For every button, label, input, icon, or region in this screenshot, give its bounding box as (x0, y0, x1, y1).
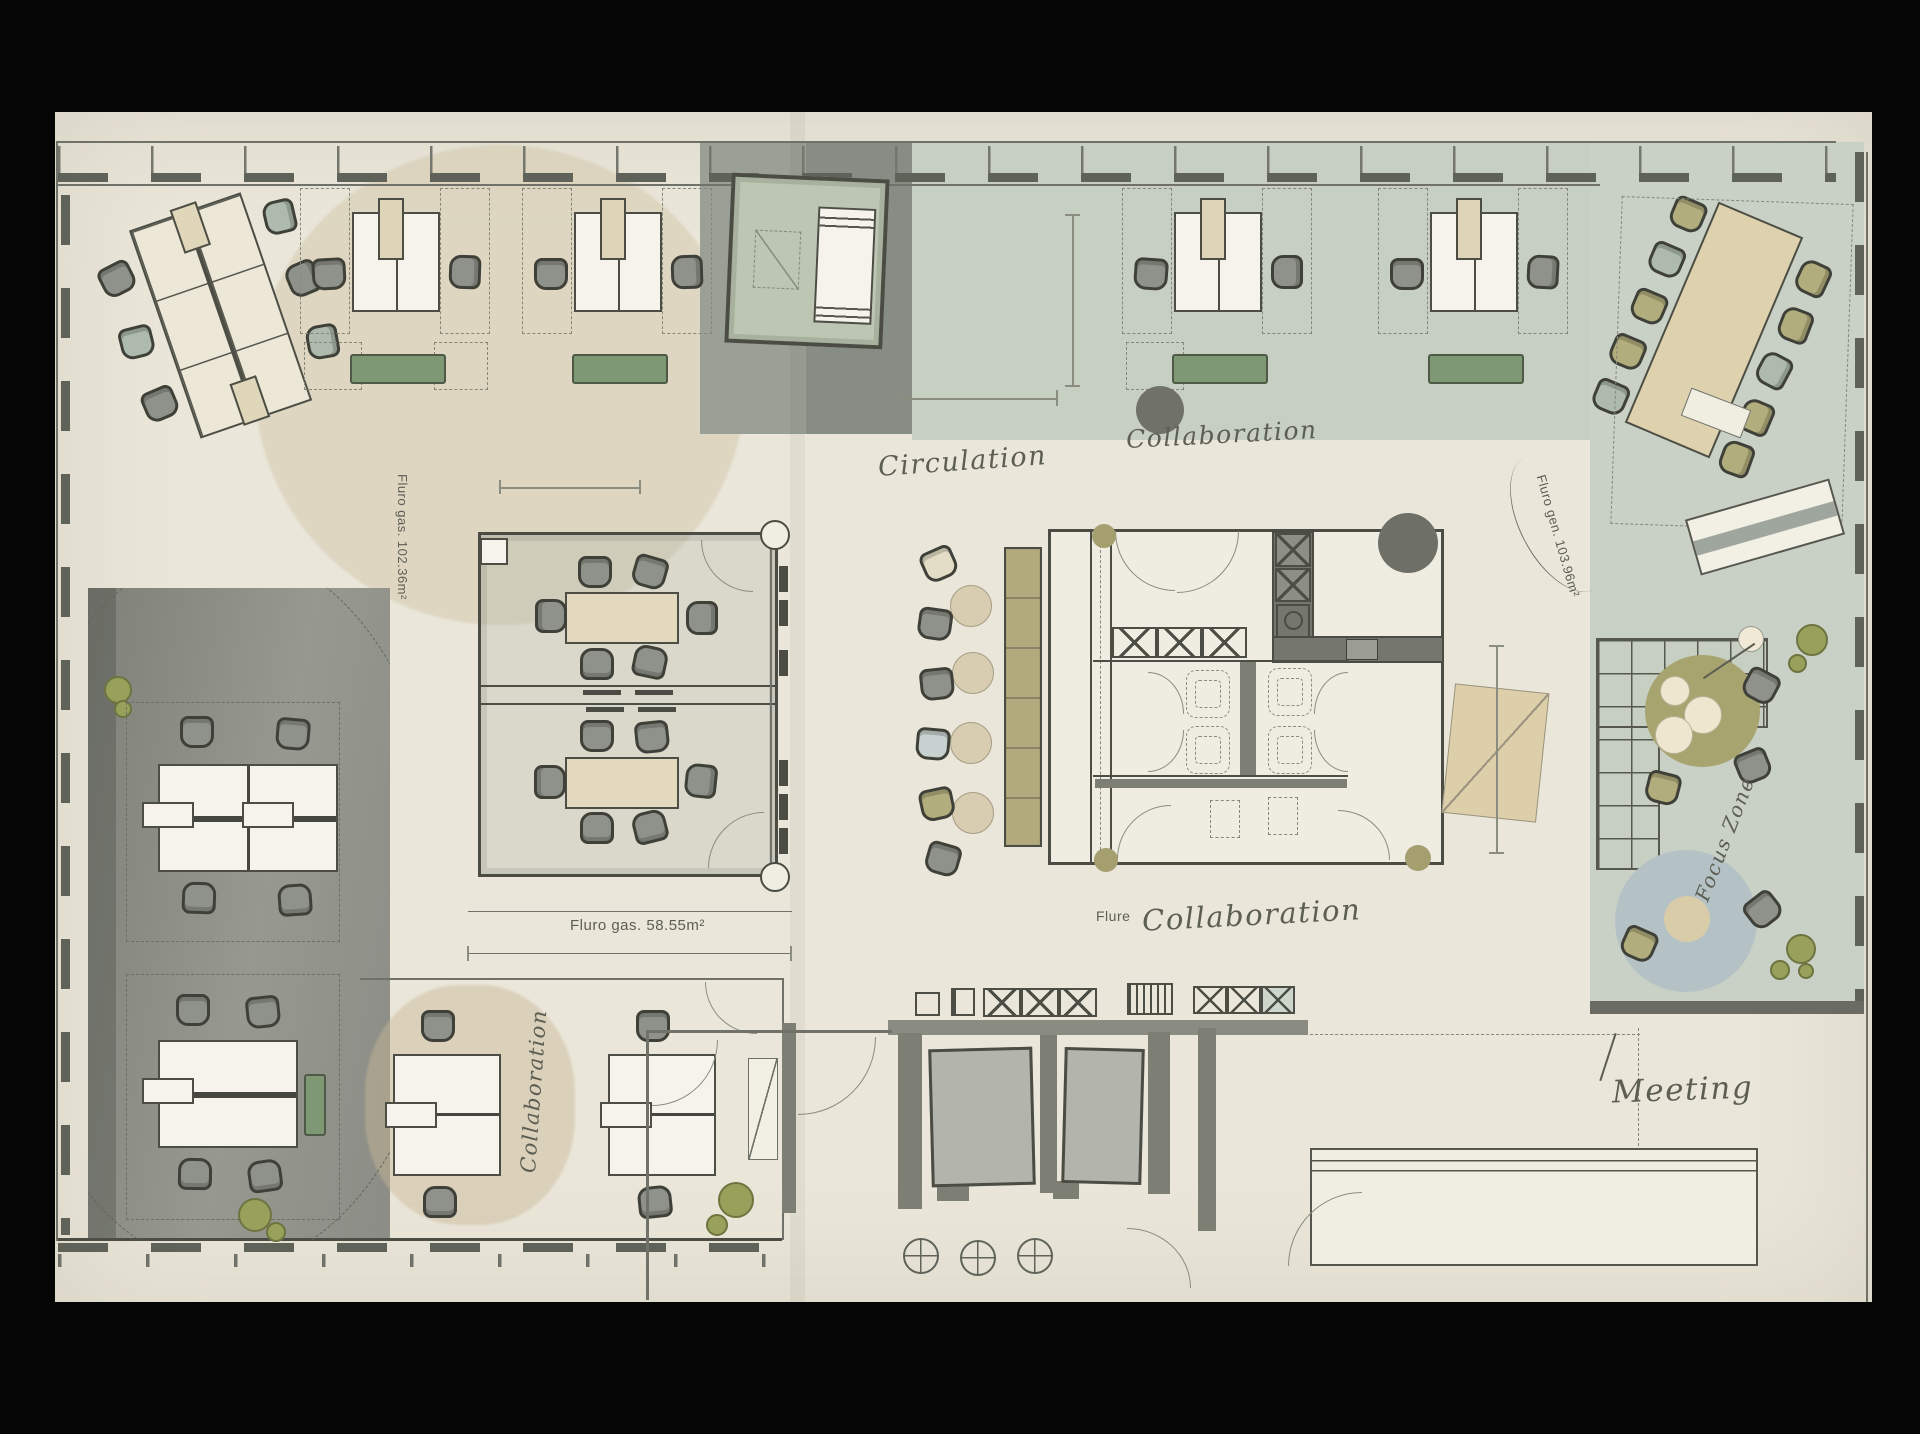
shaft-box (951, 988, 975, 1016)
plant (1786, 934, 1816, 964)
chair (423, 1186, 457, 1218)
bench-green (1172, 354, 1268, 384)
core-wall (1110, 532, 1112, 862)
chair (178, 1158, 213, 1191)
annotation-dot (1738, 626, 1764, 652)
chair (578, 556, 612, 588)
desk-divider (1200, 198, 1226, 260)
label-flure: Flure (1096, 908, 1130, 924)
core-top-band (888, 1020, 1308, 1035)
dimension-tick (1489, 645, 1504, 647)
dimension-tick (1065, 385, 1080, 387)
chair (918, 666, 955, 701)
wc-wall (1093, 660, 1348, 662)
locker-x (1157, 627, 1202, 658)
locker-x (1202, 627, 1247, 658)
bench-green (1428, 354, 1524, 384)
desk-cluster (1122, 182, 1312, 398)
glass-mullion (779, 566, 788, 592)
meeting-table (565, 757, 679, 809)
dimension-tick (467, 946, 469, 961)
desk-return (600, 1102, 652, 1128)
toilet (1268, 726, 1312, 774)
wc-wall (1093, 775, 1348, 777)
plant (718, 1182, 754, 1218)
survey-marker (1017, 1238, 1053, 1274)
core-wall (1090, 532, 1092, 862)
dimension-tick (639, 480, 641, 494)
glass-mullion (779, 760, 788, 786)
chair (180, 716, 214, 748)
core-wall (782, 1023, 796, 1213)
sink-bowl (1284, 611, 1303, 630)
chair (534, 765, 566, 799)
chair (636, 1010, 670, 1042)
shaft-x (1227, 986, 1261, 1014)
desk-return (242, 802, 294, 828)
chair (181, 881, 216, 914)
banquette-bench (1004, 547, 1042, 847)
desk-cluster-quad (118, 702, 348, 962)
kitchen-x (1275, 533, 1311, 567)
room-wall-line (646, 1030, 892, 1033)
chair (1526, 254, 1560, 290)
shaft-wall (898, 1033, 922, 1209)
chair (448, 254, 481, 289)
leaning-board (748, 1058, 778, 1160)
desk-cluster-vertical (385, 1008, 525, 1243)
chair (670, 254, 703, 289)
plant (266, 1222, 286, 1242)
label-meeting: Meeting (1611, 1070, 1753, 1111)
column-round (760, 520, 790, 550)
column-round (760, 862, 790, 892)
shaft-box (915, 992, 940, 1016)
chair (275, 717, 312, 752)
chair (535, 599, 567, 633)
toilet-tank (1277, 678, 1303, 706)
chair (421, 1010, 455, 1042)
plant (1798, 963, 1814, 979)
room-wall-line (646, 1030, 649, 1300)
plant (706, 1214, 728, 1236)
chair (311, 257, 347, 291)
chair (686, 601, 718, 635)
chair (246, 1158, 284, 1194)
pouf (952, 652, 994, 694)
column-box (480, 538, 508, 565)
chair (534, 258, 568, 290)
core-wall (1095, 779, 1347, 788)
dimension-tick (790, 946, 792, 961)
top-wall-windows (58, 173, 1836, 182)
divider-mark (586, 707, 679, 712)
desk-return (142, 1078, 194, 1104)
shaft-x (983, 988, 1021, 1017)
dimension-tick (1489, 852, 1504, 854)
right-wall-outer-line (1866, 152, 1868, 1302)
desk-cluster (522, 182, 712, 398)
survey-marker (903, 1238, 939, 1274)
annotation-line (468, 953, 792, 954)
chair (1390, 258, 1424, 290)
shaft-x (1261, 986, 1295, 1014)
desk-return (385, 1102, 437, 1128)
chair (1271, 255, 1303, 289)
chair (915, 727, 952, 762)
dimension-line (1496, 646, 1498, 854)
left-wall-outer-line (56, 141, 58, 1241)
green-room (724, 173, 889, 350)
chair (138, 383, 182, 426)
right-wall-windows (1855, 152, 1864, 1012)
locker-x (1112, 627, 1157, 658)
column-dark (1378, 513, 1438, 573)
desk-divider (600, 198, 626, 260)
shaft-wall (1198, 1028, 1216, 1231)
chair (1133, 257, 1169, 291)
glass-mullion (779, 650, 788, 676)
fixture-dashed (1210, 800, 1240, 838)
shaft-x (1193, 986, 1227, 1014)
elevator-cab (928, 1047, 1036, 1188)
toilet (1186, 726, 1230, 774)
glass-mullion (779, 794, 788, 820)
top-wall-mullions (58, 146, 1836, 176)
left-wall-windows (61, 195, 70, 1235)
chair (580, 720, 614, 752)
toilet (1268, 668, 1312, 716)
room-divider-line (481, 703, 775, 705)
corner-post (1405, 845, 1431, 871)
desk-divider (1456, 198, 1482, 260)
toilet (1186, 670, 1230, 718)
dimension-tick (1056, 390, 1058, 406)
chair (244, 994, 281, 1029)
label-area-left: Fluro gas. 102.36m² (395, 474, 410, 600)
glass-wall-line (770, 534, 772, 876)
right-zone-bottom-wall (1590, 1001, 1864, 1014)
glass-mullion (779, 600, 788, 626)
bench-green (304, 1074, 326, 1136)
pouf (952, 792, 994, 834)
bottom-wall-windows (58, 1243, 782, 1252)
chair (580, 648, 614, 680)
chair (580, 812, 614, 844)
layout-dashed-line (1310, 1034, 1640, 1035)
toilet-tank (1195, 680, 1221, 708)
chair (260, 197, 299, 237)
plant (1796, 624, 1828, 656)
fixture-dashed (1268, 797, 1298, 835)
toilet-tank (1277, 736, 1303, 764)
toilet-tank (1195, 736, 1221, 764)
chair (176, 994, 210, 1026)
corner-post (1094, 848, 1118, 872)
wc-wall (1240, 662, 1256, 775)
table-plate (1660, 676, 1690, 706)
shaft-wall (1148, 1032, 1170, 1194)
label-area-center: Fluro gas. 58.55m² (570, 917, 705, 934)
floor-plan-canvas: Circulation Collaboration Collaboration … (0, 0, 1920, 1434)
desk-cluster (1378, 182, 1568, 398)
shaft-stub (937, 1186, 969, 1201)
plant (1788, 654, 1807, 673)
plant (1770, 960, 1790, 980)
survey-marker (960, 1240, 996, 1276)
bench-green (572, 354, 668, 384)
meeting-table (565, 592, 679, 644)
desk-return (142, 802, 194, 828)
shaft-wall (1040, 1035, 1057, 1193)
corner-post (1092, 524, 1116, 548)
dimension-tick (897, 390, 899, 406)
dimension-line (1072, 215, 1074, 385)
room-wall-line (360, 978, 784, 980)
top-wall-outer-line (58, 141, 1836, 143)
chair (916, 606, 954, 642)
chair (636, 1184, 673, 1219)
divider-mark (583, 690, 676, 695)
annotation-line (468, 911, 792, 912)
dimension-tick (1065, 214, 1080, 216)
chair (95, 257, 140, 301)
room-divider-line (481, 685, 775, 687)
pouf (950, 585, 992, 627)
elevator-cab (1061, 1047, 1145, 1185)
bench-green (350, 354, 446, 384)
dimension-line (500, 487, 640, 489)
chair (116, 323, 157, 362)
stair-hatch (1127, 983, 1173, 1015)
chair (633, 719, 670, 754)
glass-mullion (779, 828, 788, 854)
desk-cluster (300, 182, 490, 398)
kitchen-oven (1346, 639, 1378, 660)
meeting-zone-table (1310, 1148, 1758, 1266)
shaft-x (1059, 988, 1097, 1017)
room-table (813, 206, 876, 324)
dimension-line (898, 398, 1056, 400)
table-plate (1655, 716, 1693, 754)
desk-cluster-quad (118, 962, 348, 1240)
pouf (950, 722, 992, 764)
kitchen-x (1275, 568, 1311, 602)
shaft-stub (1053, 1181, 1079, 1199)
bottom-bench-legs (58, 1254, 782, 1267)
chair (277, 883, 313, 917)
dashed-equipment (753, 230, 801, 290)
core-wall-dash (1100, 540, 1101, 855)
focus-table (1664, 896, 1710, 942)
chair (683, 762, 718, 799)
desk-divider (378, 198, 404, 260)
dimension-tick (499, 480, 501, 494)
plant (104, 676, 132, 704)
shaft-x (1021, 988, 1059, 1017)
